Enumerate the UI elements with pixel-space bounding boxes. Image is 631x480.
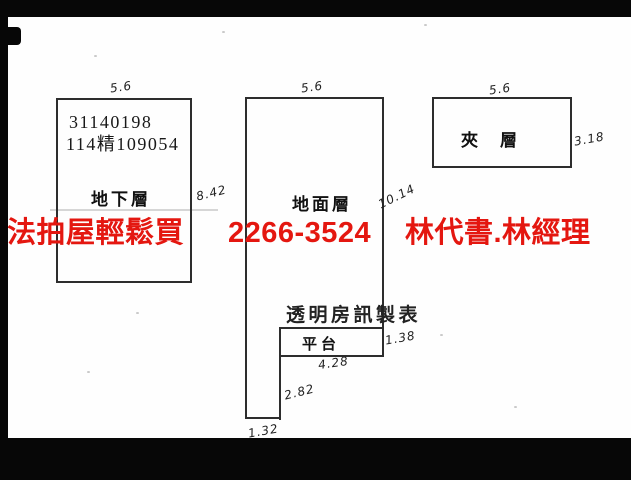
scanned-floorplan-document: 5.6 31140198 114精109054 地下層 8.42 5.6 地面層…: [0, 0, 631, 480]
mezzanine-top-dimension: 5.6: [488, 81, 512, 98]
platform-label: 平台: [302, 333, 340, 354]
info-provider-credit: 透明房訊製表: [286, 300, 421, 327]
ground-left-wall: [245, 97, 247, 419]
scan-speckle: [94, 55, 97, 57]
platform-left-wall: [279, 327, 281, 420]
scan-speckle: [136, 312, 139, 314]
mezzanine-label: 夾層: [461, 126, 539, 151]
scan-edge-left: [0, 17, 8, 438]
platform-bottom-dimension: 4.28: [317, 354, 349, 372]
scan-edge-blob: [0, 27, 21, 45]
scan-speckle: [424, 24, 427, 26]
scan-speckle: [222, 31, 225, 33]
platform-top-wall: [279, 327, 384, 329]
ground-foot-bottom-wall: [245, 417, 281, 419]
scan-speckle: [440, 334, 443, 336]
foot-right-dimension: 2.82: [283, 381, 316, 402]
scan-edge-top: [0, 0, 631, 17]
ground-top-wall: [245, 97, 384, 99]
watermark-slogan: 法拍屋輕鬆買: [7, 218, 184, 249]
scan-edge-bottom: [0, 438, 631, 480]
basement-id-number-2: 114精109054: [66, 130, 179, 156]
platform-right-dimension: 1.38: [384, 328, 417, 347]
mezzanine-right-dimension: 3.18: [573, 129, 606, 148]
basement-label: 地下層: [91, 185, 151, 210]
watermark-phone-number: 2266-3524: [228, 218, 371, 249]
ground-floor-label: 地面層: [292, 190, 352, 215]
scan-speckle: [87, 371, 90, 373]
basement-top-dimension: 5.6: [109, 79, 133, 96]
ground-top-dimension: 5.6: [300, 79, 324, 96]
watermark-agent-names: 林代書.林經理: [405, 218, 591, 249]
scan-speckle: [514, 406, 517, 408]
basement-right-dimension: 8.42: [195, 182, 228, 203]
